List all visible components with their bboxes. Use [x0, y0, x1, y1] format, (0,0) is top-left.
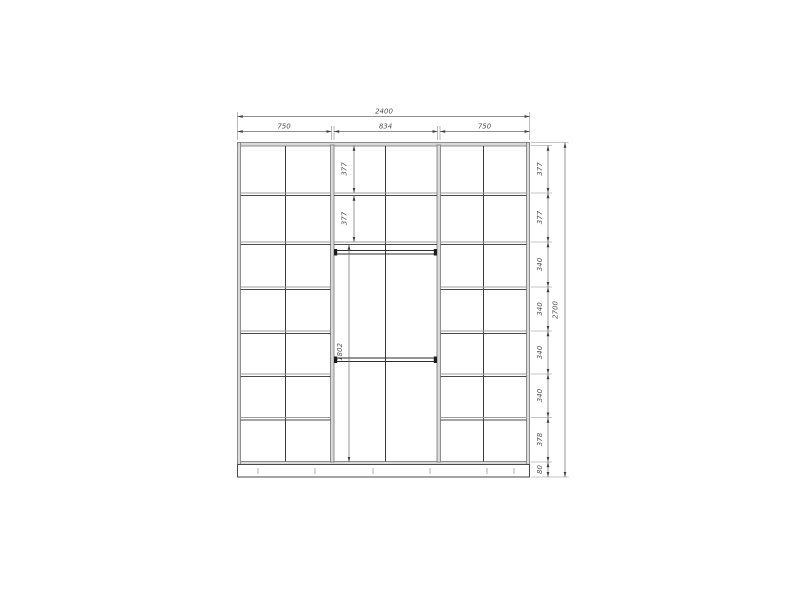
- dim-section-right: 750: [478, 123, 492, 131]
- dim-row-3: 340: [536, 257, 544, 271]
- dim-middle-row-1: 377: [341, 162, 349, 176]
- dim-overall-width: 2400: [375, 108, 393, 116]
- dim-row-7: 378: [536, 432, 544, 446]
- dim-plinth: 80: [536, 465, 544, 474]
- dim-row-5: 340: [536, 345, 544, 359]
- divider-left: [331, 145, 335, 462]
- dim-section-middle: 834: [379, 123, 392, 131]
- dim-row-2: 377: [536, 210, 544, 224]
- dim-middle-row-2: 377: [341, 211, 349, 225]
- wardrobe-drawing-svg: 2400 750 834 750 377 377 340 340: [0, 0, 800, 600]
- top-dimensions: 2400 750 834 750: [238, 108, 530, 141]
- drawing-canvas: 2400 750 834 750 377 377 340 340: [0, 0, 800, 600]
- cabinet-body: [238, 143, 530, 478]
- left-side-panel: [238, 143, 241, 465]
- right-side-panel: [527, 143, 530, 465]
- dim-row-1: 377: [536, 162, 544, 176]
- dim-section-left: 750: [277, 123, 291, 131]
- plinth: [238, 465, 530, 478]
- dim-overall-height: 2700: [552, 301, 560, 319]
- right-dimensions: 377 377 340 340 340 340 378 80 2700: [531, 143, 569, 478]
- dim-row-4: 340: [536, 302, 544, 316]
- dim-row-6: 340: [536, 388, 544, 402]
- top-panel: [238, 143, 530, 147]
- dim-hanging-height: 1802: [336, 343, 344, 361]
- divider-right: [437, 145, 441, 462]
